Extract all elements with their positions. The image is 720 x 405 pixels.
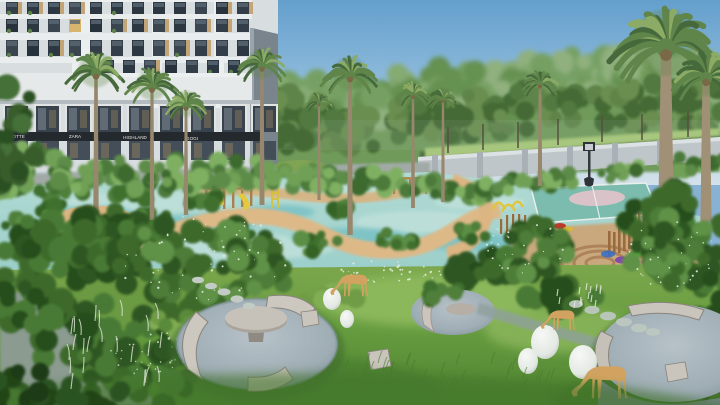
svg-text:HIGHLAND: HIGHLAND <box>123 135 147 140</box>
svg-text:ZARA: ZARA <box>69 134 82 139</box>
svg-text:GOGI: GOGI <box>186 136 198 141</box>
